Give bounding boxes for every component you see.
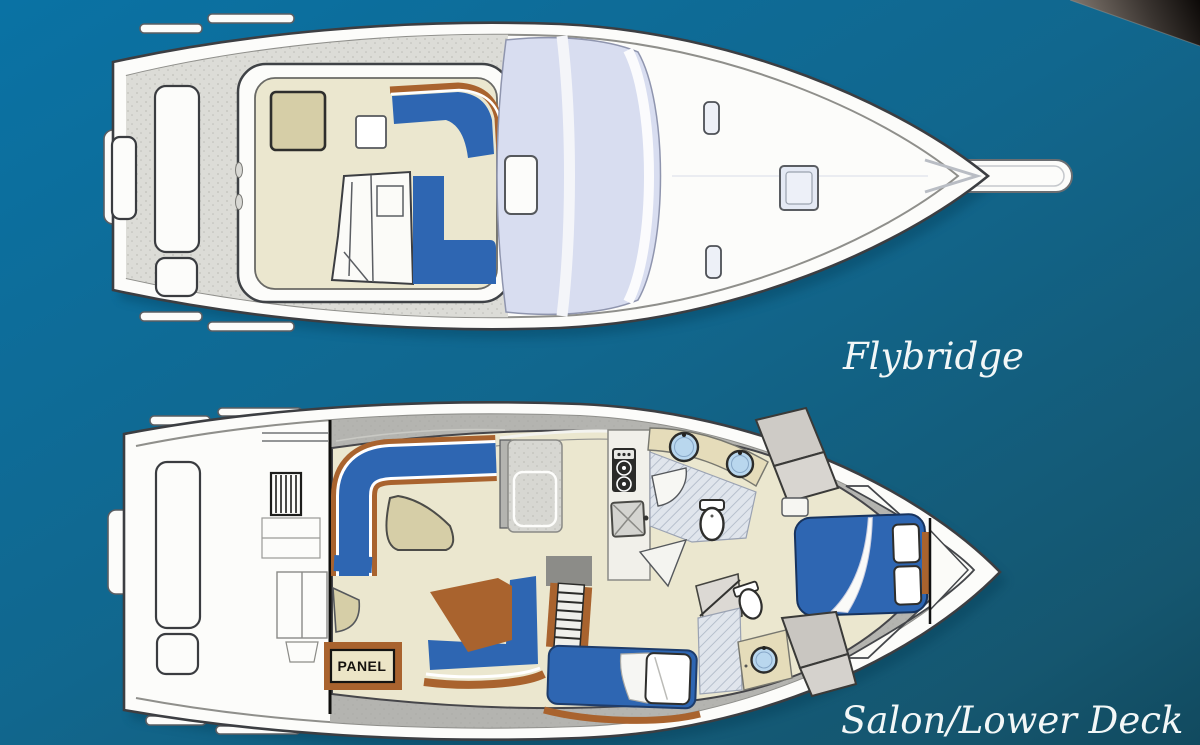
guest-pillow	[645, 653, 691, 705]
lower-deck-plan: PANEL	[108, 398, 1010, 745]
helm-console	[332, 172, 413, 284]
master-pillow	[893, 524, 920, 563]
guest-shower-floor	[698, 608, 742, 694]
companionway-hatch	[505, 156, 537, 214]
flybridge-label: Flybridge	[842, 335, 1024, 378]
guest-cabin	[547, 646, 697, 709]
flybridge-enclosure	[236, 64, 511, 302]
flybridge-plan	[104, 14, 1072, 338]
galley-sink	[611, 501, 649, 537]
flybridge-ladder	[271, 473, 301, 515]
yacht-floorplan-graphic: Flybridge	[0, 0, 1200, 745]
stove	[612, 448, 636, 492]
door-hinge	[236, 195, 243, 210]
side-hatch	[112, 137, 136, 219]
cockpit-hatch-small	[157, 634, 198, 674]
foredeck-hatch	[706, 246, 721, 278]
door-hinge	[236, 163, 243, 178]
lower-deck-label: Salon/Lower Deck	[841, 699, 1183, 742]
storage-box	[356, 116, 386, 148]
deck-hatch-long	[155, 86, 199, 252]
stern-rail	[208, 322, 294, 331]
toilet	[700, 500, 724, 540]
guest-sink	[752, 648, 777, 673]
cockpit-hatch-long	[156, 462, 200, 628]
foredeck-hatch	[704, 102, 719, 134]
panel-sign-label: PANEL	[338, 658, 387, 674]
master-pillow	[894, 566, 921, 605]
stern-rail	[140, 312, 202, 321]
flybridge-table	[271, 92, 325, 150]
nightstand	[782, 498, 808, 516]
lower-helm-seat	[334, 555, 373, 573]
stern-rail	[140, 24, 202, 33]
yacht-brochure-page: Flybridge	[0, 0, 1200, 745]
deck-hatch-small	[156, 258, 197, 296]
foredeck-skylight-inner	[786, 172, 812, 204]
companionway-stairs	[546, 556, 593, 651]
corner-accent	[1070, 0, 1200, 46]
stern-rail	[208, 14, 294, 23]
panel-sign: PANEL	[324, 642, 402, 690]
